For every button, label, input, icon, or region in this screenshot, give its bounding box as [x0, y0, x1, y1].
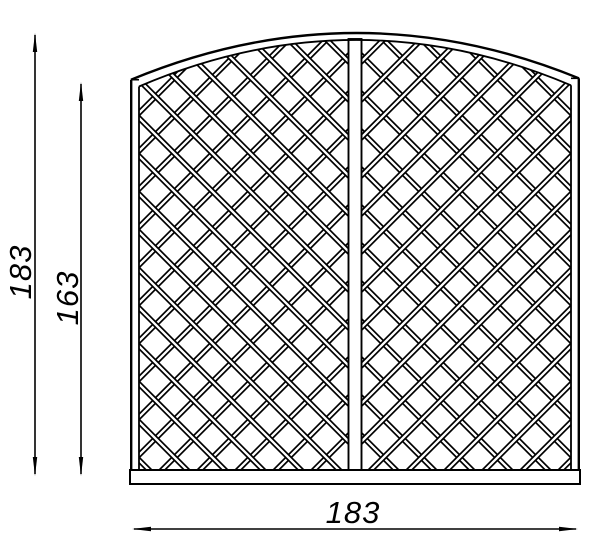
arrow-up-icon	[79, 82, 83, 101]
total-height-label: 183	[3, 245, 38, 300]
side-height-label: 163	[50, 271, 85, 326]
bottom-rail	[130, 470, 580, 484]
arrow-down-icon	[79, 457, 83, 476]
arrow-right-icon	[559, 527, 578, 531]
arrow-left-icon	[132, 527, 151, 531]
lattice-right-half	[0, 0, 607, 551]
dimension-width: 183	[132, 495, 578, 531]
dimension-total-height: 183	[3, 33, 38, 476]
arrow-up-icon	[33, 33, 37, 52]
lattice-left-half	[0, 0, 607, 551]
arrow-down-icon	[33, 457, 37, 476]
width-label: 183	[326, 495, 381, 530]
dimension-side-height: 163	[50, 82, 85, 476]
lattice-infill	[0, 0, 607, 551]
technical-drawing-canvas: 183 163 183	[0, 0, 607, 551]
center-divider	[349, 39, 362, 471]
trellis-panel-drawing: 183 163 183	[0, 0, 607, 551]
